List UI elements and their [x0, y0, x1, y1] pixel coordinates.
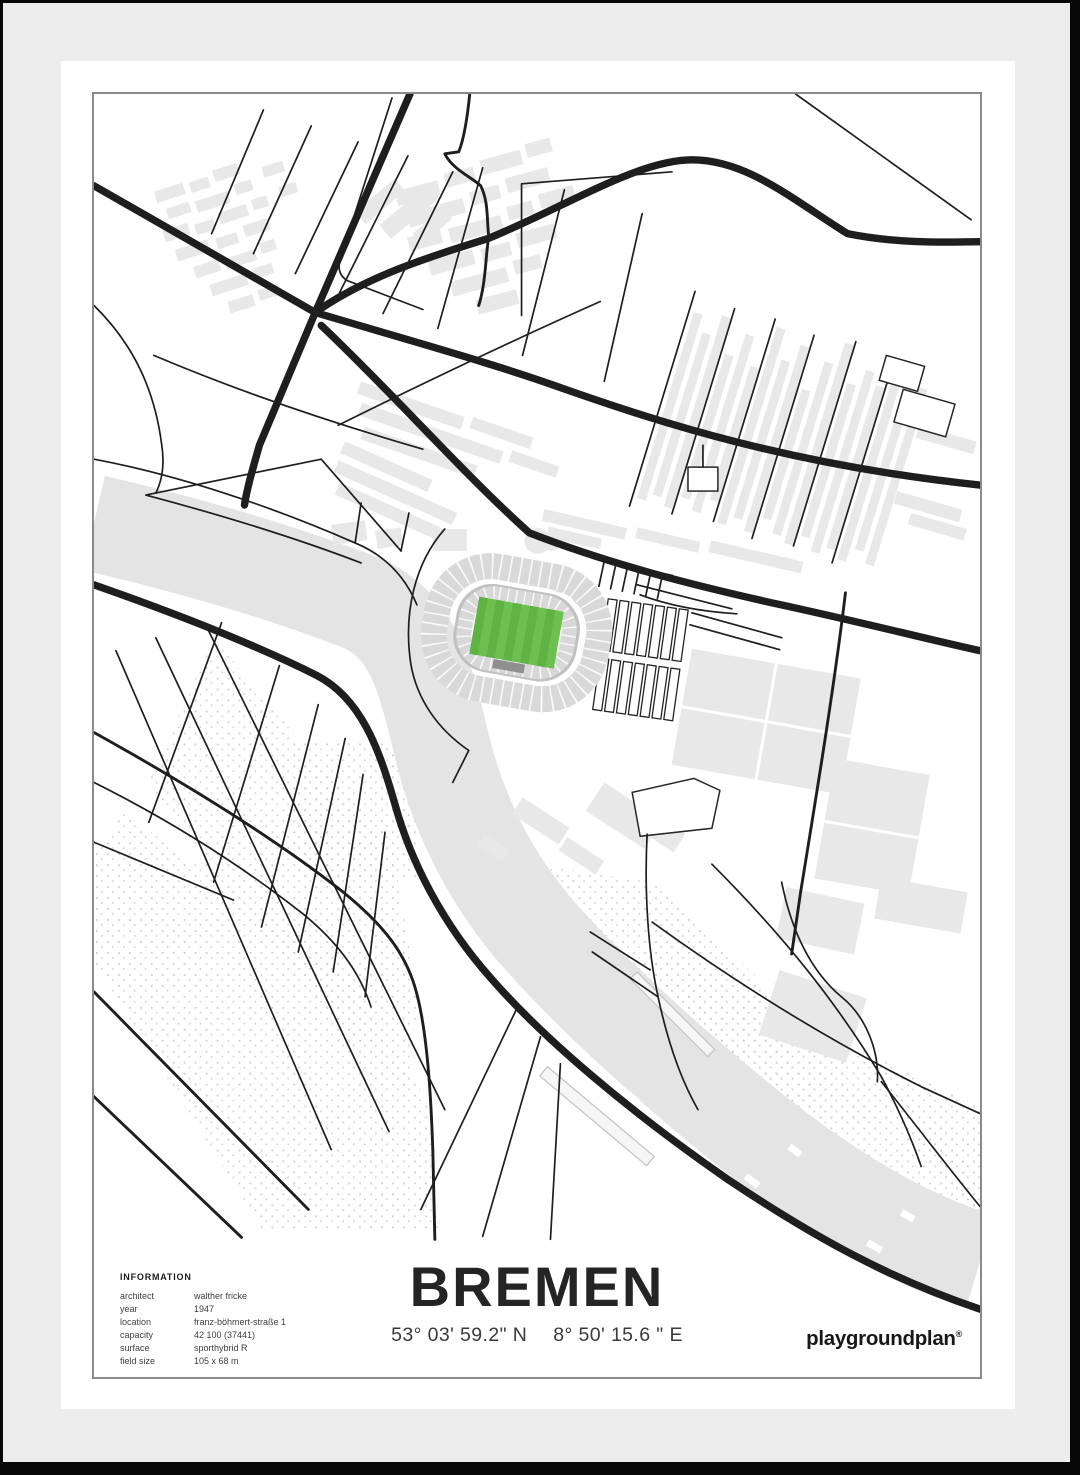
city-map: INFORMATION architectwalther fricke year… — [92, 92, 982, 1379]
brand-logo: playgroundplan® — [806, 1327, 962, 1351]
coordinate-east: 8° 50' 15.6 " E — [553, 1324, 683, 1346]
coordinate-north: 53° 03' 59.2" N — [391, 1324, 527, 1346]
framed-poster: INFORMATION architectwalther fricke year… — [0, 0, 1080, 1475]
bremen-street-map — [94, 94, 980, 1377]
registered-mark: ® — [956, 1329, 962, 1339]
poster-mat: INFORMATION architectwalther fricke year… — [61, 61, 1015, 1409]
poster-frame: INFORMATION architectwalther fricke year… — [3, 3, 1070, 1462]
info-row-field-size: field size105 x 68 m — [120, 1356, 380, 1369]
poster-title: BREMEN — [94, 1258, 980, 1316]
